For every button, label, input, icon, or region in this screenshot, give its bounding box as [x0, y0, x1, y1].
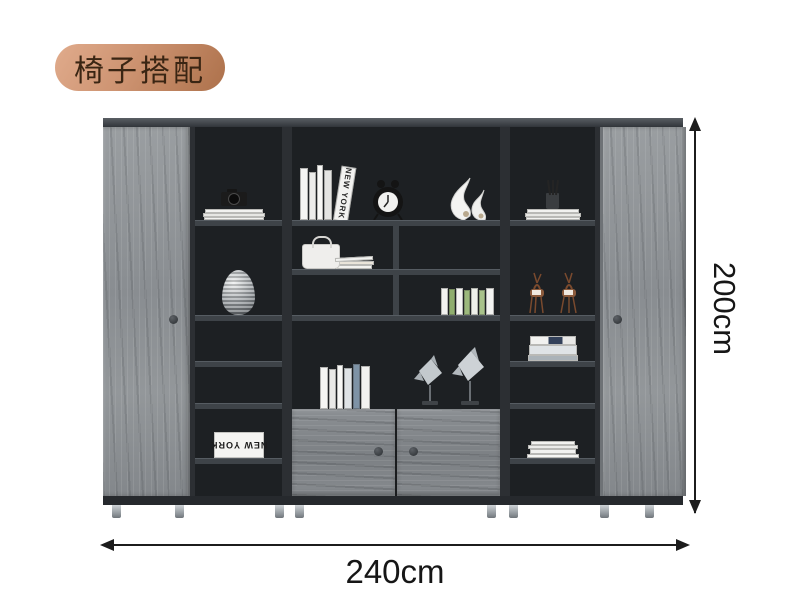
- cabinet-leg: [509, 505, 518, 518]
- shelf-cell: [510, 464, 595, 496]
- handbag-decor: [302, 244, 374, 269]
- center-door-right: [397, 409, 500, 496]
- product-badge: 椅子搭配: [55, 44, 225, 91]
- book-stack-decor: [528, 336, 578, 361]
- left-door-knob: [169, 315, 178, 324]
- shelf-cell: [510, 367, 595, 403]
- shelf-cell: [195, 464, 282, 496]
- pen-cup-decor: [525, 193, 581, 220]
- new-york-book-spine: NEW YORK: [333, 166, 356, 220]
- shelf-cell: [195, 367, 282, 403]
- cabinet-top-panel: [103, 118, 683, 127]
- shelf-cell: [195, 226, 282, 315]
- standing-books-decor: [320, 364, 370, 409]
- vase-decor: [222, 270, 255, 315]
- cabinet-leg: [487, 505, 496, 518]
- sculpture-decor: [446, 176, 496, 220]
- standing-books-decor: NEW YORK: [300, 165, 348, 220]
- alarm-clock-decor: [370, 178, 406, 220]
- product-dimension-diagram: 椅子搭配: [0, 0, 790, 606]
- cabinet-leg: [175, 505, 184, 518]
- camera-decor: [203, 189, 265, 220]
- shelf-cell: [510, 127, 595, 220]
- shelf-cell: [292, 321, 500, 409]
- width-dimension-label: 240cm: [104, 553, 686, 591]
- cabinet-leg: [600, 505, 609, 518]
- paper-stack-decor: [527, 441, 579, 458]
- center-door-left-knob: [374, 447, 383, 456]
- height-dimension-line: [694, 119, 696, 513]
- cabinet-leg: [645, 505, 654, 518]
- left-shelf-column: NEW YORK: [190, 127, 287, 496]
- center-doors: [292, 409, 500, 496]
- fish-sculptures-decor: [414, 347, 490, 409]
- cabinet-leg: [275, 505, 284, 518]
- height-dimension-label: 200cm: [706, 262, 742, 355]
- width-dimension-line: [104, 544, 686, 546]
- arrow-left-icon: [100, 539, 114, 551]
- shelf-cell: NEW YORK: [195, 409, 282, 458]
- arrow-down-icon: [689, 500, 701, 514]
- right-door-knob: [613, 315, 622, 324]
- cabinet-base-panel: [103, 496, 683, 505]
- shelf-row: [292, 275, 500, 315]
- cabinet-leg: [295, 505, 304, 518]
- shelf-row: [292, 226, 500, 269]
- shelf-cell: [292, 226, 393, 269]
- right-shelf-column: [505, 127, 600, 496]
- new-york-box-label: NEW YORK: [210, 440, 267, 450]
- left-door: [103, 127, 193, 496]
- shelf-cell: NEW YORK: [292, 127, 500, 220]
- shelf-cell: [510, 409, 595, 458]
- right-door: [600, 127, 686, 496]
- shelf-cell: [510, 226, 595, 315]
- center-door-right-knob: [409, 447, 418, 456]
- shelf-cell: [510, 321, 595, 361]
- arrow-right-icon: [676, 539, 690, 551]
- arrow-up-icon: [689, 117, 701, 131]
- cabinet-leg: [112, 505, 121, 518]
- shelf-cell: [399, 226, 500, 269]
- new-york-book-box: NEW YORK: [214, 432, 264, 458]
- shelf-cell: [292, 275, 393, 315]
- shelf-cell: [195, 127, 282, 220]
- center-door-left: [292, 409, 395, 496]
- center-shelf-section: NEW YORK: [287, 127, 505, 496]
- green-books-decor: [441, 288, 494, 315]
- camera-icon: [219, 189, 249, 209]
- cabinet: NEW YORK NEW YORK: [103, 118, 683, 505]
- badge-label: 椅子搭配: [74, 46, 206, 90]
- shelf-cell: [399, 275, 500, 315]
- deer-figurines-decor: [524, 271, 582, 315]
- shelf-cell: [195, 321, 282, 361]
